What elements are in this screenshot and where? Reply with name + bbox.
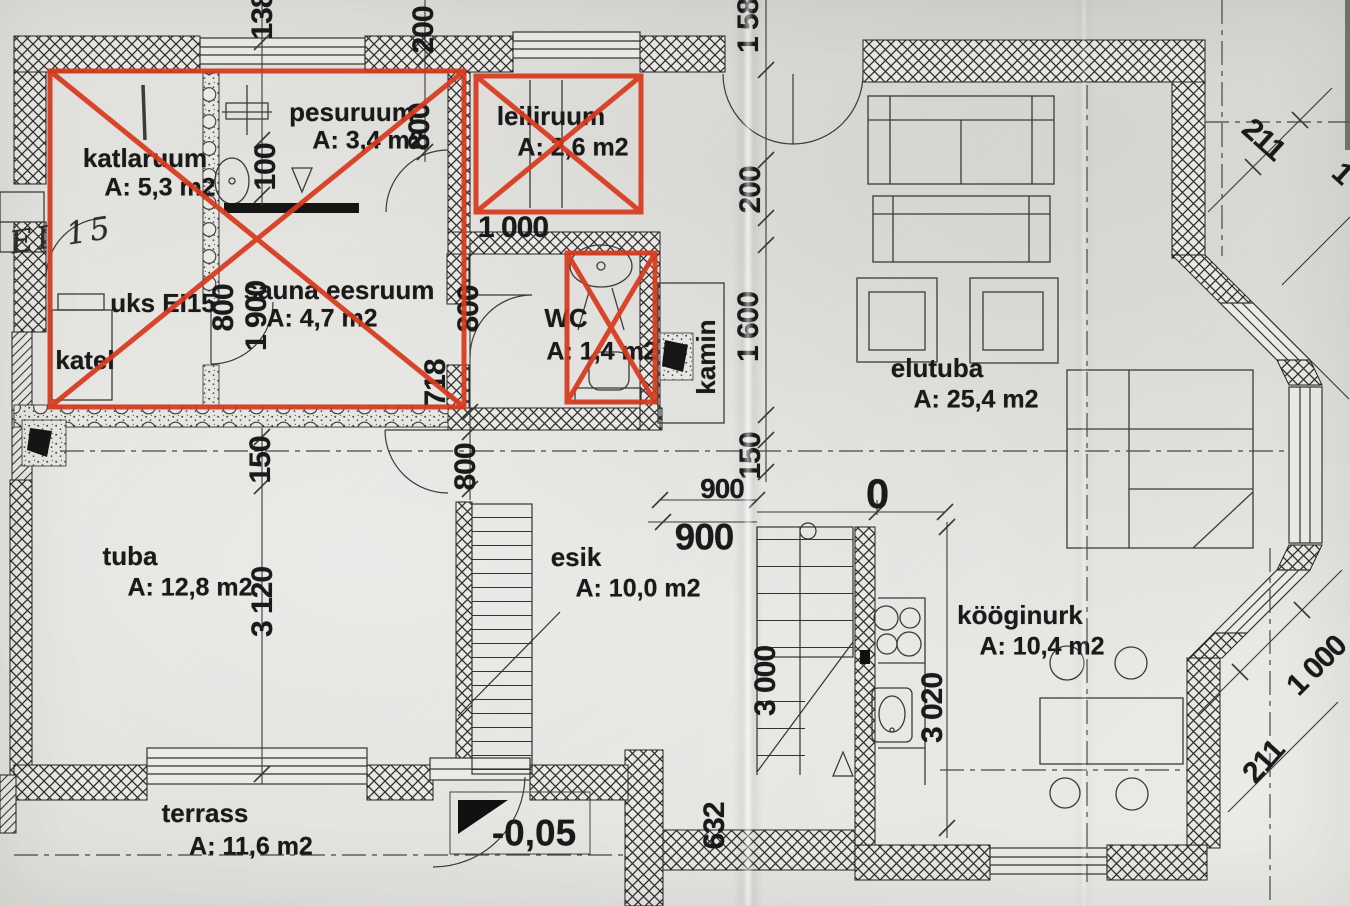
red-cross-leiliruum <box>476 76 641 212</box>
scan-edge-shadow <box>1345 0 1350 150</box>
red-markup-layer <box>0 0 1350 906</box>
red-cross-sauna-block <box>50 71 464 407</box>
red-cross-wc <box>567 253 655 402</box>
floorplan-scan: katlaruum A: 5,3 m2 pesuruum A: 3,4 m2 l… <box>0 0 1350 906</box>
